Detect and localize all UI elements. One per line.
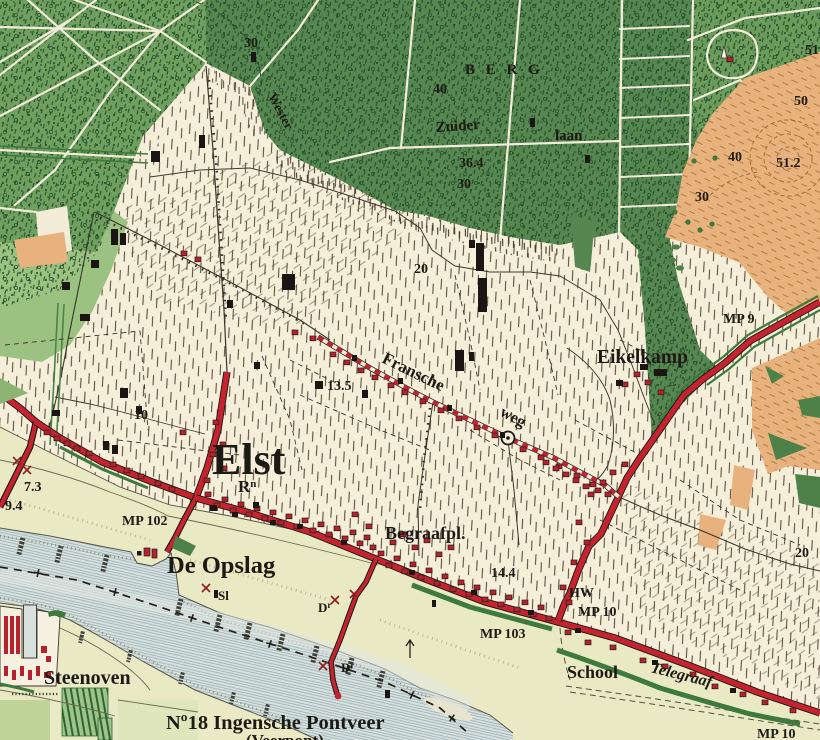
svg-text:MP 103: MP 103 [480, 627, 526, 642]
svg-text:20: 20 [414, 262, 428, 277]
svg-text:Zuider: Zuider [435, 117, 481, 136]
svg-text:7.3: 7.3 [24, 480, 42, 495]
svg-text:laan: laan [555, 128, 583, 144]
svg-text:13.5: 13.5 [327, 379, 352, 394]
svg-text:30: 30 [695, 190, 709, 205]
svg-text:50: 50 [794, 94, 808, 109]
svg-text:10: 10 [134, 408, 148, 423]
svg-text:School: School [567, 662, 618, 682]
svg-text:30: 30 [244, 36, 258, 51]
svg-text:Sl: Sl [218, 588, 229, 603]
svg-text:B E R G: B E R G [465, 62, 543, 78]
svg-text:(Veerpont): (Veerpont) [246, 731, 324, 740]
svg-text:Begraafpl.: Begraafpl. [385, 523, 466, 543]
svg-text:51.2: 51.2 [776, 156, 801, 171]
svg-text:MP 102: MP 102 [122, 514, 168, 529]
svg-text:20: 20 [795, 546, 809, 561]
svg-text:HW: HW [569, 586, 594, 601]
svg-text:De Opslag: De Opslag [167, 552, 276, 579]
svg-text:40: 40 [728, 150, 742, 165]
svg-text:9.4: 9.4 [5, 499, 23, 514]
svg-text:51: 51 [805, 43, 819, 58]
svg-text:40: 40 [433, 82, 447, 97]
svg-text:MP 10: MP 10 [578, 605, 617, 620]
svg-text:MP 9: MP 9 [723, 312, 755, 327]
svg-text:14.4: 14.4 [491, 566, 516, 581]
svg-text:Steenoven: Steenoven [44, 667, 131, 689]
svg-text:Eikelkamp: Eikelkamp [597, 347, 688, 368]
svg-text:MP 10: MP 10 [757, 727, 796, 740]
svg-text:36.4: 36.4 [459, 156, 484, 171]
svg-text:30: 30 [457, 177, 471, 192]
